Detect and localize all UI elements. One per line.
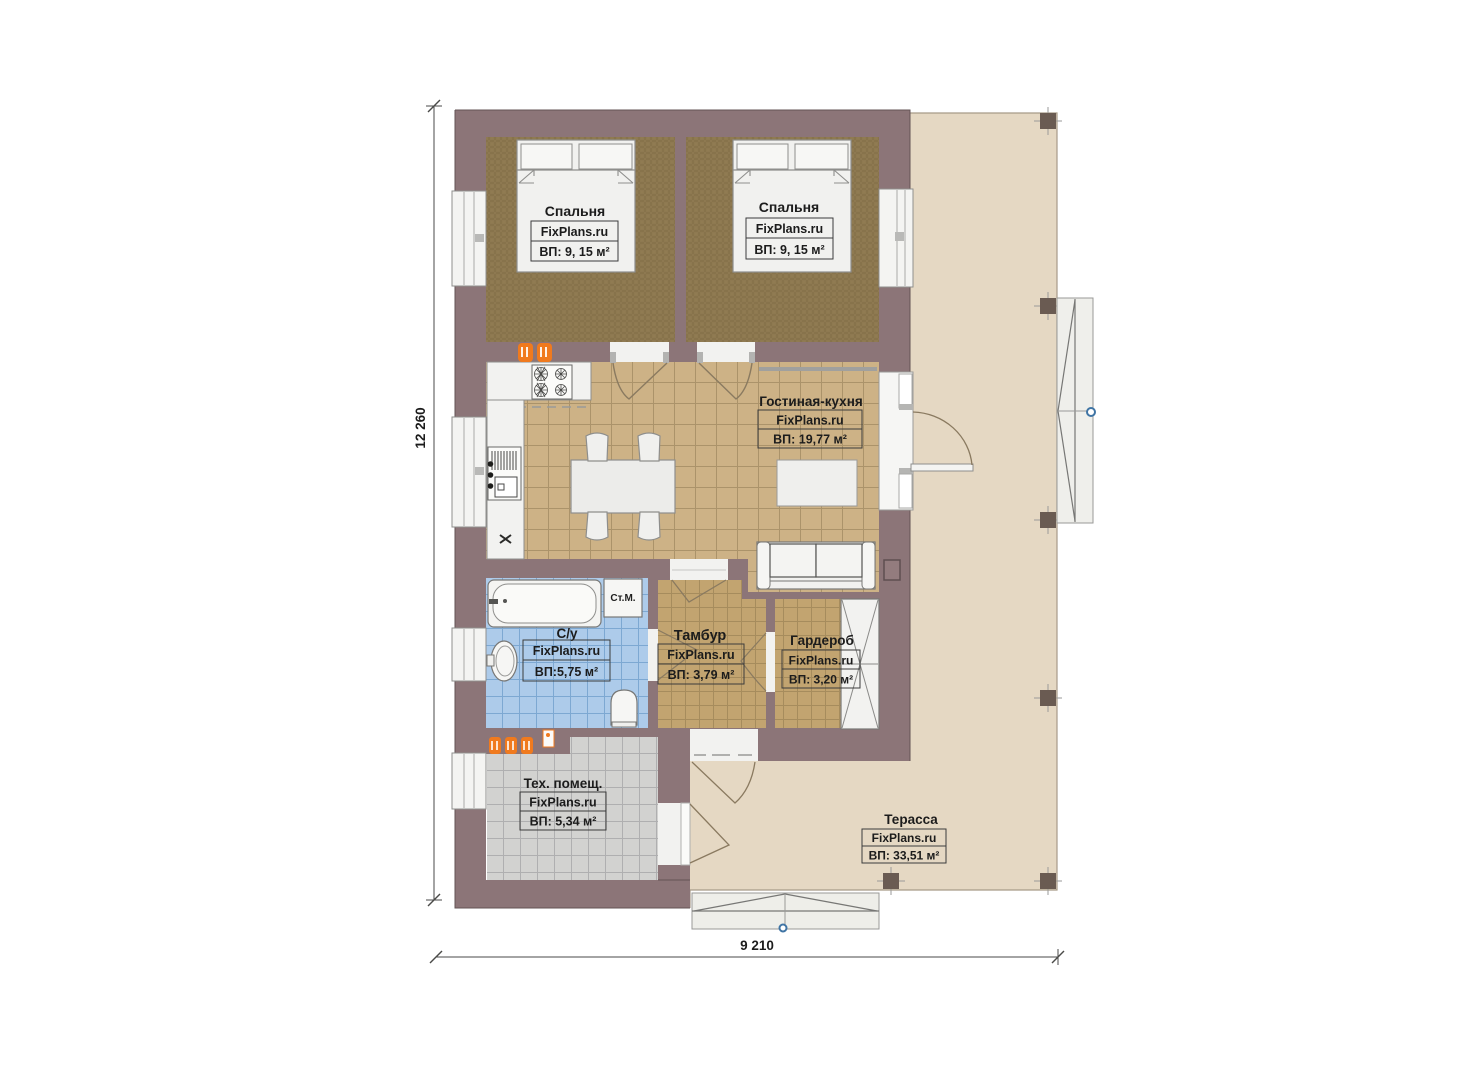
svg-text:ВП: 19,77 м²: ВП: 19,77 м² <box>773 433 847 447</box>
svg-text:ВП: 9, 15 м²: ВП: 9, 15 м² <box>754 243 824 257</box>
svg-text:ВП: 9, 15 м²: ВП: 9, 15 м² <box>539 245 609 259</box>
svg-text:12 260: 12 260 <box>413 407 428 448</box>
svg-text:FixPlans.ru: FixPlans.ru <box>789 654 854 668</box>
svg-text:FixPlans.ru: FixPlans.ru <box>529 796 596 810</box>
svg-text:Терасса: Терасса <box>884 812 938 827</box>
svg-text:FixPlans.ru: FixPlans.ru <box>872 831 937 845</box>
svg-text:Гардероб: Гардероб <box>790 633 854 648</box>
svg-text:FixPlans.ru: FixPlans.ru <box>541 225 608 239</box>
svg-text:ВП: 5,34 м²: ВП: 5,34 м² <box>530 815 597 829</box>
svg-text:FixPlans.ru: FixPlans.ru <box>756 222 823 236</box>
svg-text:9 210: 9 210 <box>740 938 774 953</box>
svg-text:С/у: С/у <box>556 626 578 641</box>
svg-text:Гостиная-кухня: Гостиная-кухня <box>759 394 862 409</box>
svg-text:FixPlans.ru: FixPlans.ru <box>533 644 600 658</box>
svg-text:Спальня: Спальня <box>545 203 605 219</box>
svg-text:ВП: 3,79 м²: ВП: 3,79 м² <box>668 668 735 682</box>
svg-text:ВП:5,75 м²: ВП:5,75 м² <box>535 665 598 679</box>
svg-text:Тамбур: Тамбур <box>674 628 727 644</box>
svg-text:Ст.М.: Ст.М. <box>610 593 635 604</box>
svg-text:ВП: 3,20 м²: ВП: 3,20 м² <box>789 673 853 687</box>
svg-text:Тех. помещ.: Тех. помещ. <box>524 776 603 791</box>
svg-text:FixPlans.ru: FixPlans.ru <box>667 648 734 662</box>
svg-text:FixPlans.ru: FixPlans.ru <box>776 414 843 428</box>
svg-text:ВП: 33,51 м²: ВП: 33,51 м² <box>869 849 940 863</box>
svg-text:Спальня: Спальня <box>759 199 819 215</box>
